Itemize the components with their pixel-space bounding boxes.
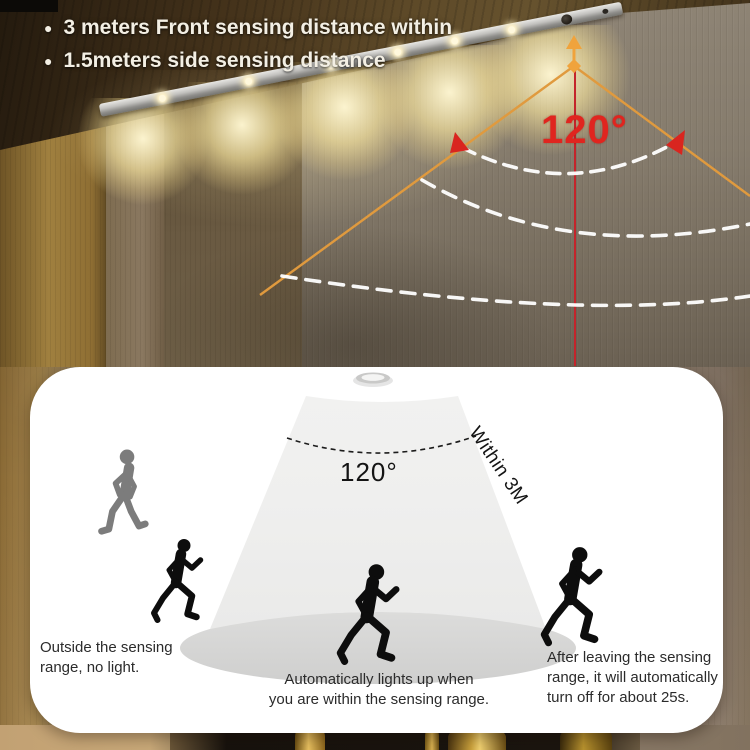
product-infographic: ● 3 meters Front sensing distance within…	[0, 0, 750, 750]
caption-lights-up: Automatically lights up when you are wit…	[238, 670, 520, 710]
cabinet-scene: ● 3 meters Front sensing distance within…	[0, 0, 750, 367]
caption-line: you are within the sensing range.	[238, 690, 520, 710]
sensing-info-card: 120° Within 3M Outside the sensing range…	[30, 367, 723, 733]
wall-shadow	[150, 140, 600, 367]
caption-auto-off: After leaving the sensing range, it will…	[547, 648, 723, 708]
caption-line: range, it will automatically	[547, 668, 723, 688]
feature-bullet: ● 1.5meters side sensing distance	[44, 49, 604, 73]
caption-line: range, no light.	[40, 658, 240, 678]
feature-bullet-text: 3 meters Front sensing distance within	[63, 16, 452, 40]
walking-person-icon	[102, 450, 146, 532]
running-person-icon	[544, 547, 599, 643]
diagram-scene: 120° Within 3M Outside the sensing range…	[0, 367, 750, 750]
running-person-icon	[154, 539, 201, 620]
bullet-dot-icon: ●	[44, 49, 52, 73]
feature-bullet-list: ● 3 meters Front sensing distance within…	[44, 16, 604, 82]
recessed-sensor-light-icon	[353, 373, 393, 388]
led-dot-icon	[158, 94, 166, 102]
caption-line: turn off for about 25s.	[547, 688, 723, 708]
top-corner-shadow	[0, 0, 58, 12]
bullet-dot-icon: ●	[44, 16, 52, 40]
feature-bullet: ● 3 meters Front sensing distance within	[44, 16, 604, 40]
caption-line: After leaving the sensing	[547, 648, 723, 668]
sensing-angle-value: 120°	[541, 108, 628, 153]
feature-bullet-text: 1.5meters side sensing distance	[63, 49, 385, 73]
caption-line: Automatically lights up when	[238, 670, 520, 690]
caption-outside-range: Outside the sensing range, no light.	[40, 638, 240, 678]
caption-line: Outside the sensing	[40, 638, 240, 658]
diagram-angle-value: 120°	[340, 457, 398, 488]
mounting-hole-icon	[602, 8, 609, 14]
